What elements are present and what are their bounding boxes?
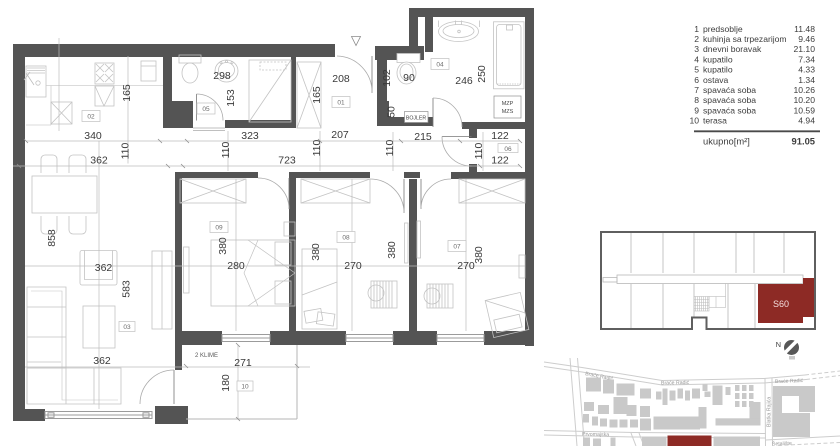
svg-text:723: 723 [278,155,296,167]
svg-text:4.94: 4.94 [798,116,815,126]
svg-text:09: 09 [215,225,223,232]
svg-text:9.46: 9.46 [798,34,815,44]
svg-text:110: 110 [473,142,485,159]
svg-text:Prvomajska: Prvomajska [582,432,609,439]
svg-text:4: 4 [694,54,699,64]
svg-text:spavaća soba: spavaća soba [703,105,756,115]
svg-text:122: 122 [491,155,509,167]
svg-text:06: 06 [504,146,512,153]
svg-text:03: 03 [123,324,131,331]
svg-text:50: 50 [386,106,398,118]
svg-text:7: 7 [694,85,699,95]
svg-text:21.10: 21.10 [793,44,815,54]
svg-text:153: 153 [225,89,237,107]
svg-text:1.34: 1.34 [798,75,815,85]
svg-text:10: 10 [241,384,249,391]
svg-text:280: 280 [227,260,245,272]
svg-text:362: 362 [95,262,113,274]
svg-text:90: 90 [403,72,415,84]
svg-text:208: 208 [332,73,350,85]
svg-text:01: 01 [337,100,345,107]
svg-text:3: 3 [694,44,699,54]
svg-text:MZS: MZS [502,109,514,115]
svg-text:predsoblje: predsoblje [703,24,743,34]
svg-text:122: 122 [491,130,509,142]
svg-text:4.33: 4.33 [798,65,815,75]
svg-text:1: 1 [694,24,699,34]
svg-text:kupatilo: kupatilo [703,65,733,75]
svg-text:BOJLER: BOJLER [406,116,426,122]
svg-text:380: 380 [217,237,229,255]
svg-text:Šetalište: Šetalište [772,440,792,446]
svg-text:ukupno[m²]: ukupno[m²] [703,136,750,147]
svg-text:270: 270 [344,260,362,272]
svg-text:250: 250 [476,65,488,83]
svg-text:Braće Radić: Braće Radić [661,380,690,386]
svg-text:298: 298 [213,70,231,82]
svg-text:165: 165 [311,86,323,104]
svg-text:583: 583 [121,280,133,298]
svg-text:MZP: MZP [502,101,514,107]
svg-text:kuhinja sa trpezarijom: kuhinja sa trpezarijom [703,34,787,44]
svg-text:246: 246 [455,75,473,87]
svg-text:215: 215 [414,131,432,143]
svg-text:380: 380 [310,243,322,261]
svg-text:N: N [776,340,781,349]
svg-text:5: 5 [694,65,699,75]
svg-text:110: 110 [384,139,396,156]
svg-text:spavaća soba: spavaća soba [703,95,756,105]
svg-text:Braće Radić: Braće Radić [775,378,804,385]
svg-text:10.26: 10.26 [793,85,815,95]
svg-text:10.20: 10.20 [793,95,815,105]
svg-text:102: 102 [381,69,393,87]
svg-text:04: 04 [436,62,444,69]
svg-text:08: 08 [342,235,350,242]
svg-text:858: 858 [46,229,58,247]
svg-text:165: 165 [121,84,133,102]
svg-text:2: 2 [694,34,699,44]
svg-text:05: 05 [202,106,210,113]
svg-text:dnevni boravak: dnevni boravak [703,44,762,54]
svg-text:10: 10 [689,116,699,126]
svg-text:362: 362 [90,155,108,167]
svg-text:terasa: terasa [703,116,727,126]
svg-text:110: 110 [220,141,232,158]
svg-text:Blatka Rajića: Blatka Rajića [767,397,773,427]
svg-text:kupatilo: kupatilo [703,54,733,64]
svg-text:380: 380 [386,241,398,259]
svg-text:02: 02 [87,114,95,121]
svg-text:ostava: ostava [703,75,729,85]
svg-text:S60: S60 [773,299,789,309]
svg-text:7.34: 7.34 [798,54,815,64]
svg-text:8: 8 [694,95,699,105]
svg-text:2 KLIME: 2 KLIME [195,353,218,359]
svg-text:380: 380 [473,246,485,264]
svg-text:11.48: 11.48 [794,24,815,34]
svg-text:91.05: 91.05 [792,136,815,147]
svg-text:07: 07 [453,244,461,251]
svg-text:6: 6 [694,75,699,85]
svg-text:340: 340 [84,130,102,142]
svg-text:110: 110 [120,142,132,159]
svg-text:180: 180 [220,374,232,392]
svg-text:9: 9 [694,105,699,115]
svg-text:271: 271 [234,357,252,369]
svg-text:207: 207 [331,129,349,141]
svg-text:110: 110 [311,139,323,156]
svg-text:362: 362 [93,355,111,367]
svg-text:323: 323 [241,130,259,142]
svg-text:10.59: 10.59 [793,105,815,115]
svg-text:spavaća soba: spavaća soba [703,85,756,95]
